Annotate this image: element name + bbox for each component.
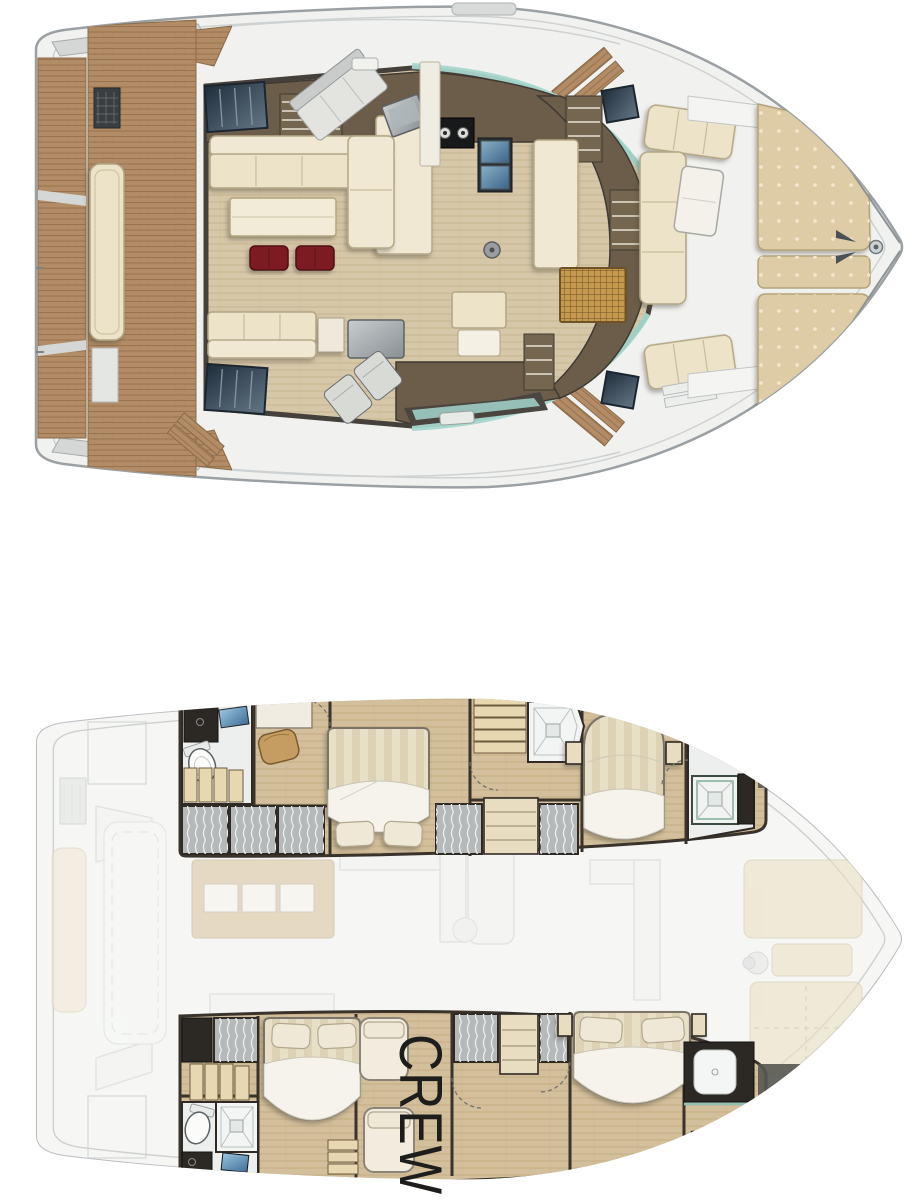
main-deck-plan [30, 3, 902, 487]
side-table [318, 318, 344, 352]
stb-wardrobe [214, 1018, 258, 1062]
stb-dark-cabinet [182, 1018, 212, 1062]
stb-forward-bathroom [684, 1042, 754, 1148]
pedestal-center [490, 248, 495, 253]
bow-corner-pad-top [830, 94, 864, 130]
sunpad-top [758, 104, 870, 250]
round-mirror-inner [727, 741, 741, 755]
ghost-liferaft-panel [104, 822, 166, 1044]
salon-coffee-table [230, 198, 336, 236]
coachroof-pillar [420, 62, 440, 166]
port-mid-wardrobes [436, 798, 578, 854]
chart-seat [452, 292, 506, 328]
ghost-galley-island [192, 860, 334, 938]
tv-screen [221, 1153, 249, 1173]
port-slatted-cabinet [184, 768, 243, 802]
sink [723, 1110, 753, 1146]
round-mirror [723, 737, 745, 759]
stb-aft-bathroom [182, 1102, 258, 1186]
nightstand [558, 1014, 572, 1036]
foredeck-woven-mat [560, 268, 626, 322]
nightstand [666, 742, 682, 764]
port-aft-bed [328, 728, 429, 847]
bow-corner-pad-bottom [830, 364, 864, 400]
lower-deck-plan: CREW [36, 688, 902, 1195]
starboard-coachroof-window [204, 364, 267, 414]
forward-port-hatch-window [601, 85, 638, 122]
bow-window-bottom [798, 398, 834, 432]
vanity-desk [256, 698, 312, 728]
shower-column [184, 702, 218, 742]
sunpad-middle-strip [758, 256, 870, 288]
yacht-floorplan-image: CREW [0, 0, 916, 1200]
port-wardrobe-row [182, 806, 324, 854]
aft-swim-platform [30, 58, 86, 438]
ghost-cockpit-bench [52, 848, 86, 1012]
port-forward-bathroom [688, 714, 754, 840]
stb-shower-column [182, 1152, 212, 1186]
galley-island [534, 140, 578, 268]
bow-window-top [798, 62, 834, 96]
nightstand [566, 742, 582, 764]
boom-fitting [452, 3, 516, 15]
port-hull-cabins [180, 691, 854, 856]
stb-aft-shower [216, 1102, 258, 1152]
stb-anchor-locker [758, 1064, 854, 1112]
mirror [219, 706, 249, 728]
sink [691, 724, 723, 745]
galley-sink [478, 138, 512, 192]
shower-tray [694, 1050, 736, 1094]
nightstand [692, 1014, 706, 1036]
salon-aft-sofa [208, 312, 344, 358]
ghost-vent [60, 778, 86, 824]
fore-cockpit-table [673, 166, 724, 237]
helm-tray [352, 58, 378, 70]
windlass-center [874, 245, 879, 250]
port-coachroof-window [204, 82, 267, 132]
tv-screen [691, 1129, 719, 1149]
deck-locker [92, 348, 118, 402]
companionway-steps-port [474, 694, 526, 753]
stb-slatted-cabinet [190, 1064, 249, 1100]
chart-seat-cushion [458, 330, 500, 356]
deck-vent-grill [94, 88, 120, 128]
sunpad-bottom [758, 294, 870, 440]
forward-starboard-hatch-window [601, 371, 638, 408]
shower-fitting [738, 774, 754, 824]
ghost-fore-hatch-2 [664, 688, 720, 718]
stb-aft-bed [264, 1018, 360, 1120]
shower-drain [546, 724, 560, 737]
port-forward-shower [692, 776, 738, 824]
floorplan-svg: CREW [0, 0, 916, 1200]
companionway-steps-starboard [328, 1140, 358, 1174]
crew-cabin-label: CREW [387, 1034, 455, 1195]
port-anchor-locker [758, 740, 854, 788]
